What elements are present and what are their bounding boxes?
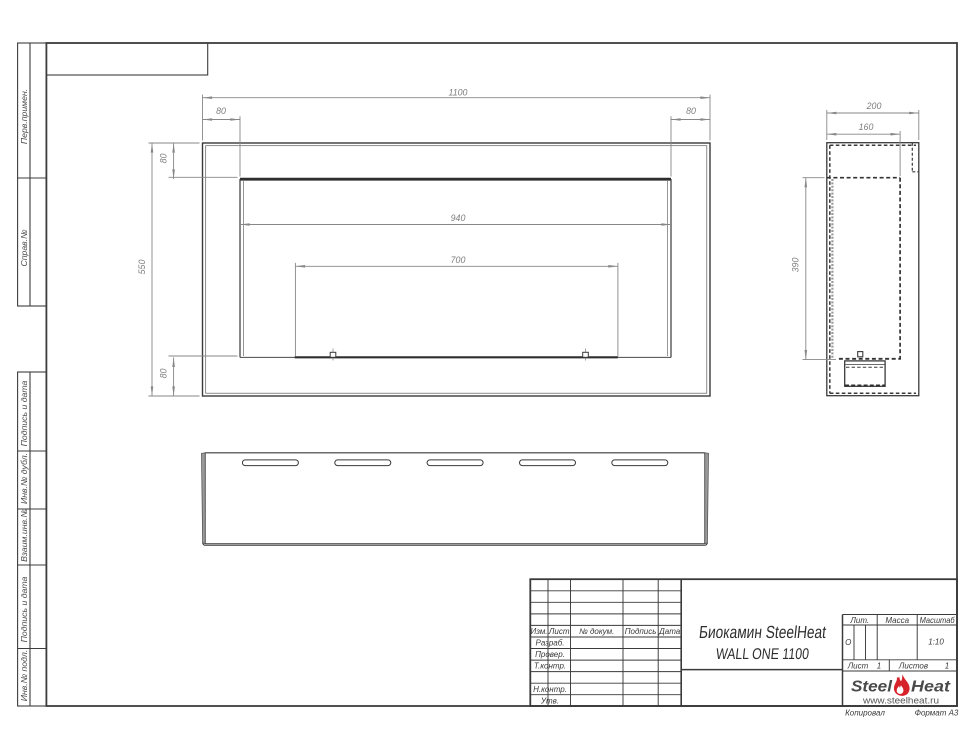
svg-text:Листов: Листов bbox=[898, 661, 928, 670]
svg-text:1100: 1100 bbox=[449, 87, 468, 97]
svg-text:Лист: Лист bbox=[548, 627, 570, 636]
svg-text:Разраб.: Разраб. bbox=[536, 639, 565, 648]
svg-text:Н.контр.: Н.контр. bbox=[533, 685, 567, 694]
svg-text:Биокамин SteelHeat: Биокамин SteelHeat bbox=[698, 622, 827, 642]
svg-text:390: 390 bbox=[791, 258, 801, 273]
svg-text:Лит.: Лит. bbox=[849, 616, 869, 625]
svg-text:Дата: Дата bbox=[658, 627, 681, 636]
svg-text:О: О bbox=[845, 638, 851, 647]
svg-text:Справ.№: Справ.№ bbox=[19, 229, 29, 266]
svg-text:Инв.№ подл.: Инв.№ подл. bbox=[19, 650, 29, 702]
svg-text:WALL ONE 1100: WALL ONE 1100 bbox=[715, 646, 810, 663]
svg-text:80: 80 bbox=[216, 106, 226, 116]
svg-text:Провер.: Провер. bbox=[535, 650, 565, 659]
svg-text:1: 1 bbox=[945, 661, 949, 670]
svg-text:Перв.примен.: Перв.примен. bbox=[19, 89, 29, 144]
svg-text:1:10: 1:10 bbox=[928, 638, 944, 647]
svg-text:Инв.№ дубл.: Инв.№ дубл. bbox=[19, 453, 29, 504]
svg-text:www.steelheat.ru: www.steelheat.ru bbox=[862, 696, 939, 707]
svg-text:Подпись: Подпись bbox=[625, 627, 657, 636]
svg-text:Масштаб: Масштаб bbox=[920, 616, 955, 625]
svg-text:Подпись и дата: Подпись и дата bbox=[19, 380, 29, 446]
svg-text:Масса: Масса bbox=[885, 616, 909, 625]
svg-text:700: 700 bbox=[451, 255, 466, 265]
svg-text:Подпись и дата: Подпись и дата bbox=[19, 576, 29, 642]
svg-text:Heat: Heat bbox=[911, 679, 951, 696]
svg-text:Взаим.инв.№: Взаим.инв.№ bbox=[19, 508, 29, 562]
svg-text:80: 80 bbox=[686, 106, 696, 116]
svg-text:550: 550 bbox=[137, 260, 147, 275]
svg-text:1: 1 bbox=[877, 661, 881, 670]
svg-text:Копировал: Копировал bbox=[845, 709, 885, 718]
svg-text:Изм.: Изм. bbox=[530, 627, 547, 636]
svg-text:200: 200 bbox=[866, 101, 882, 111]
svg-text:Утв.: Утв. bbox=[540, 696, 559, 705]
svg-text:160: 160 bbox=[859, 122, 874, 132]
svg-text:940: 940 bbox=[451, 213, 466, 223]
svg-text:80: 80 bbox=[158, 154, 168, 164]
svg-text:Т.контр.: Т.контр. bbox=[534, 662, 566, 671]
svg-text:Формат А3: Формат А3 bbox=[915, 709, 959, 718]
svg-text:80: 80 bbox=[158, 369, 168, 379]
svg-text:Лист: Лист bbox=[847, 661, 869, 670]
svg-text:№ докум.: № докум. bbox=[579, 627, 614, 636]
svg-text:Steel: Steel bbox=[851, 679, 893, 696]
